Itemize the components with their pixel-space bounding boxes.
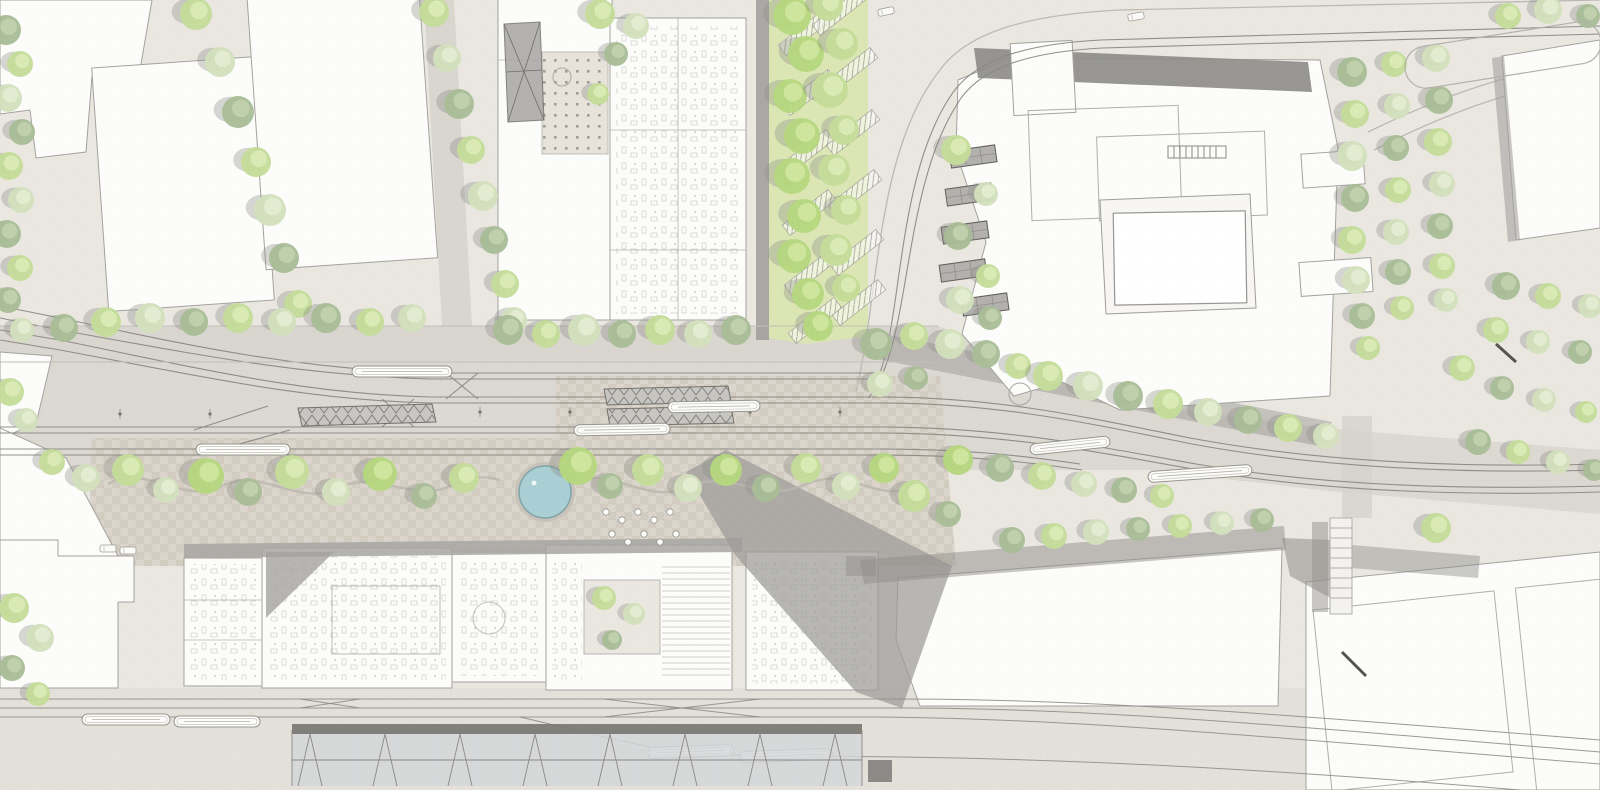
site-plan-svg	[0, 0, 1600, 790]
scene-root	[0, 0, 1600, 790]
paper-grain	[0, 0, 1600, 790]
site-plan[interactable]	[0, 0, 1600, 790]
